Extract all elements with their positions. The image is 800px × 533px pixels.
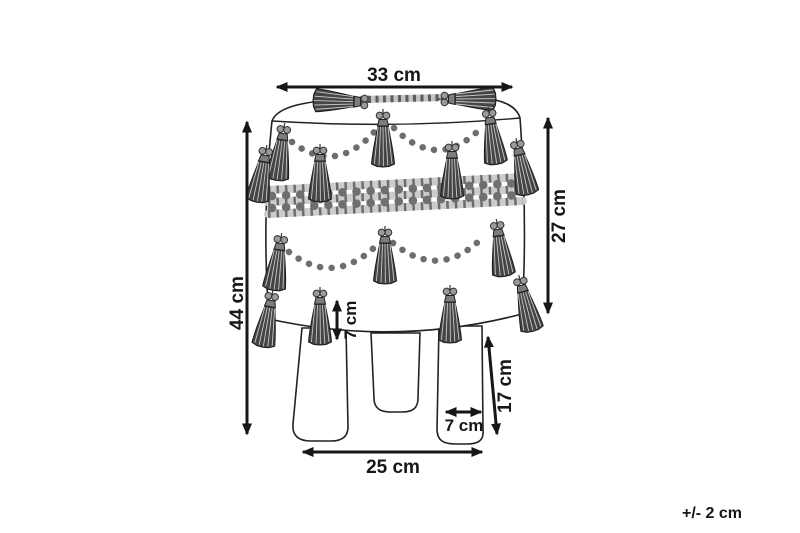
label-leg-height: 17 cm: [495, 359, 516, 413]
tolerance-note: +/- 2 cm: [682, 505, 742, 522]
pouf-dimension-drawing: 33 cm 44 cm 27 cm 7 cm 17 cm 7 cm 25 cm …: [0, 0, 800, 533]
label-leg-width: 7 cm: [445, 416, 484, 435]
leg-middle: [371, 333, 420, 412]
dimension-diagram: 33 cm 44 cm 27 cm 7 cm 17 cm 7 cm 25 cm …: [0, 0, 800, 533]
label-top-width: 33 cm: [367, 65, 421, 86]
label-tassel-drop: 7 cm: [341, 301, 360, 340]
label-body-height: 27 cm: [549, 189, 570, 243]
label-overall-height: 44 cm: [227, 276, 248, 330]
label-base-width: 25 cm: [366, 457, 420, 478]
